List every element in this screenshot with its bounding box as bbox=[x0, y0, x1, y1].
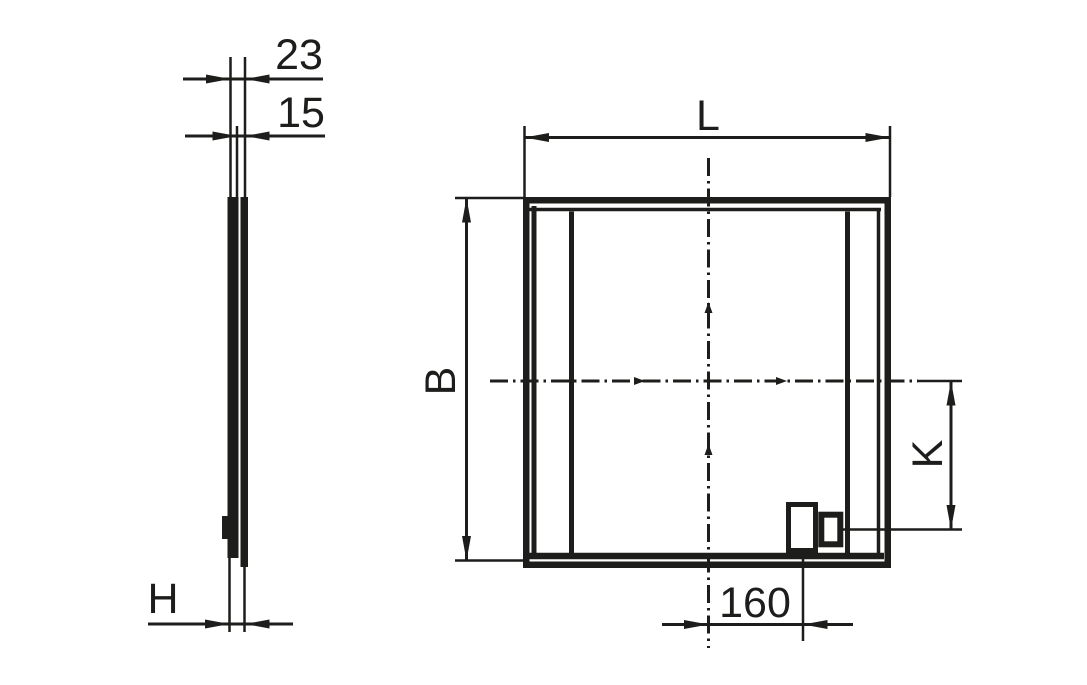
technical-drawing: 23 15 H bbox=[0, 0, 1087, 685]
arrow-gland-offset-left bbox=[684, 620, 709, 629]
panel-profile-front-bar bbox=[228, 197, 239, 558]
dim-label-depth-total: 23 bbox=[275, 31, 323, 79]
arrow-depth-panel-left bbox=[213, 132, 238, 141]
arrow-width-top bbox=[462, 198, 471, 223]
arrow-length-left bbox=[525, 133, 550, 142]
centerline-arrow-up-1 bbox=[705, 302, 713, 313]
dim-label-gland-offset: 160 bbox=[719, 579, 791, 627]
arrow-height-left bbox=[205, 620, 230, 629]
centerline-arrow-right-1 bbox=[634, 377, 645, 385]
dim-label-length: L bbox=[696, 92, 720, 140]
arrow-depth-total-left bbox=[206, 75, 231, 84]
panel-profile-rear-bar bbox=[241, 197, 249, 567]
arrow-gland-offset-right bbox=[803, 620, 828, 629]
arrow-length-right bbox=[866, 133, 891, 142]
dim-label-gland-spacing: K bbox=[904, 439, 952, 468]
dim-label-width: B bbox=[417, 367, 465, 396]
terminal-box-side-profile bbox=[222, 516, 229, 539]
arrow-depth-panel-right bbox=[245, 132, 270, 141]
side-view: 23 15 H bbox=[147, 31, 325, 632]
centerline-arrow-right-2 bbox=[776, 377, 787, 385]
dim-label-depth-panel: 15 bbox=[277, 89, 325, 137]
arrow-width-bottom bbox=[462, 536, 471, 561]
arrow-gland-spacing-bottom bbox=[947, 505, 956, 530]
cable-gland bbox=[821, 515, 840, 545]
centerline-arrow-up-2 bbox=[705, 444, 713, 455]
drawing-canvas: 23 15 H bbox=[0, 0, 1087, 685]
arrow-height-right bbox=[245, 620, 270, 629]
dim-label-height: H bbox=[147, 575, 178, 623]
arrow-gland-spacing-top bbox=[947, 381, 956, 406]
arrow-depth-total-right bbox=[245, 75, 270, 84]
terminal-box bbox=[789, 505, 816, 551]
front-view: L B K 160 bbox=[417, 92, 962, 648]
